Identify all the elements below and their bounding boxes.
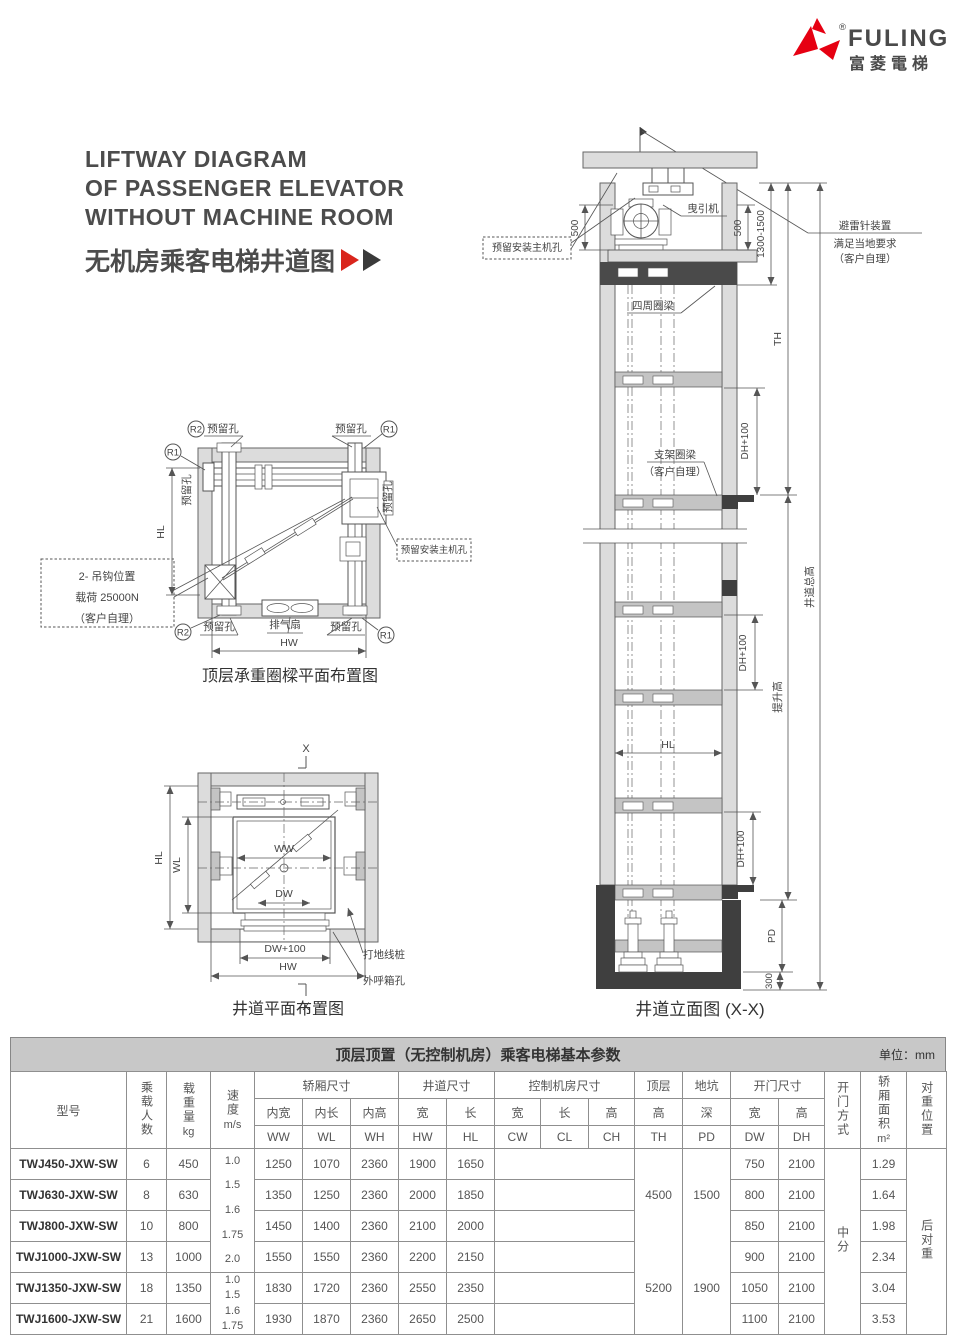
page-title: LIFTWAY DIAGRAM OF PASSENGER ELEVATOR WI… bbox=[85, 145, 404, 278]
table-row: TWJ1350-JXW-SW 18 1350 1.01.51.61.75 183… bbox=[11, 1273, 947, 1304]
col-dw: DW bbox=[731, 1126, 779, 1149]
machine-platform bbox=[608, 250, 757, 262]
cell-cwp: 后对重 bbox=[907, 1149, 947, 1335]
label-callbox: 外呼箱孔 bbox=[363, 974, 405, 987]
label-fan: 排气扇 bbox=[269, 618, 301, 631]
cell-ctrl-empty bbox=[495, 1149, 635, 1180]
diagonal-rope bbox=[232, 810, 338, 900]
cell-door-mode: 中分 bbox=[825, 1149, 861, 1335]
note-lightning-3: （客户自理） bbox=[834, 252, 897, 265]
group-ctrl-dims: 控制机房尺寸 bbox=[495, 1072, 635, 1099]
col-th-cn: 高 bbox=[635, 1099, 683, 1126]
dim-500-right: 500 bbox=[733, 219, 744, 236]
hook-note-1: 2- 吊钩位置 bbox=[79, 569, 136, 583]
table-row: TWJ630-JXW-SW 8 630 1350 1250 2360 2000 … bbox=[11, 1180, 947, 1211]
note-lightning-1: 避雷针装置 bbox=[839, 219, 892, 232]
col-hl: HL bbox=[447, 1126, 495, 1149]
col-dw-cn: 宽 bbox=[731, 1099, 779, 1126]
group-pit: 地坑 bbox=[683, 1072, 731, 1099]
title-line3: WITHOUT MACHINE ROOM bbox=[85, 203, 404, 232]
dim-dw: DW bbox=[275, 888, 293, 900]
col-iw: 内宽 bbox=[255, 1099, 303, 1126]
dim-lift-height: 提升高 bbox=[771, 681, 784, 713]
dim-label-hl: HL bbox=[155, 525, 167, 539]
shaft-plan: X W bbox=[110, 740, 470, 1025]
col-ch-cn: 高 bbox=[589, 1099, 635, 1126]
dim-1300-1500: 1300-1500 bbox=[756, 210, 767, 258]
dim-th: TH bbox=[772, 332, 784, 346]
subtitle-cn: 无机房乘客电梯井道图 bbox=[85, 242, 335, 278]
dim-hl: HL bbox=[661, 739, 675, 751]
col-hw: HW bbox=[399, 1126, 447, 1149]
label-r1-tr: R1 bbox=[383, 425, 395, 436]
label-support-beam: 支架圈梁 bbox=[654, 448, 696, 461]
machine-hole-note: 预留安装主机孔 bbox=[401, 544, 468, 556]
hook-box bbox=[205, 565, 235, 599]
label-ring-beam: 四周圈梁 bbox=[632, 299, 674, 312]
break-symbol bbox=[583, 529, 747, 543]
col-wh: WH bbox=[351, 1126, 399, 1149]
notes: 预留安装主机孔 曳引机 避雷针装置 满足当地要求 （客户自理） 四周圈梁 支架圈… bbox=[483, 173, 922, 496]
cell-speed-group2: 1.01.51.61.75 bbox=[211, 1273, 255, 1335]
note-lightning-2: 满足当地要求 bbox=[834, 237, 897, 250]
door-sill bbox=[241, 913, 329, 931]
col-model: 型号 bbox=[11, 1072, 127, 1149]
cell-model: TWJ450-JXW-SW bbox=[11, 1149, 127, 1180]
group-top-floor: 顶层 bbox=[635, 1072, 683, 1099]
label-hole-right: 预留孔 bbox=[381, 481, 394, 513]
label-hole-bl: 预留孔 bbox=[203, 620, 235, 633]
exhaust-fan bbox=[262, 600, 318, 616]
label-r2: R2 bbox=[190, 425, 202, 436]
table-row: TWJ1000-JXW-SW 13 1000 1550 1550 2360 22… bbox=[11, 1242, 947, 1273]
label-r2-bottom: R2 bbox=[177, 628, 189, 639]
col-ch: CH bbox=[589, 1126, 635, 1149]
cell-pd-merged: 15001900 bbox=[683, 1149, 731, 1335]
dim-pd: PD bbox=[767, 929, 778, 943]
dim-300: 300 bbox=[764, 973, 775, 989]
registered-mark: ® bbox=[839, 22, 846, 33]
ring-beam-band bbox=[600, 262, 737, 285]
col-pd: PD bbox=[683, 1126, 731, 1149]
table-title-bar: 顶层顶置（无控制机房）乘客电梯基本参数 单位：mm bbox=[10, 1037, 946, 1071]
dim-hw: HW bbox=[279, 961, 297, 973]
elevation-caption: 井道立面图 (X-X) bbox=[635, 1000, 764, 1019]
col-il: 内长 bbox=[303, 1099, 351, 1126]
col-cl: CL bbox=[541, 1126, 589, 1149]
shaft-plan-caption: 井道平面布置图 bbox=[232, 1000, 344, 1018]
group-car-dims: 轿厢尺寸 bbox=[255, 1072, 399, 1099]
dim-dh100-2: DH+100 bbox=[738, 634, 749, 671]
col-hw-cn: 宽 bbox=[399, 1099, 447, 1126]
dim-ww: WW bbox=[274, 843, 294, 855]
table-row: TWJ1600-JXW-SW 21 1600 1930 1870 2360 26… bbox=[11, 1304, 947, 1335]
cell-speed-group1: 1.01.51.61.752.0 bbox=[211, 1149, 255, 1273]
label-hole-tr: 预留孔 bbox=[335, 422, 367, 435]
dim-hl: HL bbox=[155, 468, 200, 595]
table-row: TWJ800-JXW-SW 10 800 1450 1400 2360 2100… bbox=[11, 1211, 947, 1242]
dim-dw100: DW+100 bbox=[264, 943, 305, 955]
hook-note-2: 载荷 25000N bbox=[75, 591, 139, 604]
title-line1: LIFTWAY DIAGRAM bbox=[85, 145, 404, 174]
group-door-dims: 开门尺寸 bbox=[731, 1072, 825, 1099]
arrow-icon-dark bbox=[363, 249, 381, 271]
col-wl: WL bbox=[303, 1126, 351, 1149]
col-dh: DH bbox=[779, 1126, 825, 1149]
table-unit: 单位：mm bbox=[879, 1046, 935, 1063]
table-title: 顶层顶置（无控制机房）乘客电梯基本参数 bbox=[11, 1044, 945, 1065]
dim-dh100-1: DH+100 bbox=[740, 422, 751, 459]
brand-name-cn: 富菱電梯 bbox=[849, 54, 933, 73]
col-hl-cn: 长 bbox=[447, 1099, 495, 1126]
label-hole-left: 预留孔 bbox=[180, 474, 193, 506]
top-ring-beam-plan: HL HW R2 预留孔 预留孔 R1 R1 预留孔 预留孔 R2 预留孔 排气… bbox=[40, 415, 470, 700]
section-x-top: X bbox=[302, 743, 310, 755]
spec-table: 型号 乘载人数 载重量kg 速度m/s 轿厢尺寸 井道尺寸 控制机房尺寸 顶层 … bbox=[10, 1071, 947, 1335]
label-traction: 曳引机 bbox=[687, 202, 719, 215]
brand-logo: ® FULING 富菱電梯 bbox=[792, 16, 942, 83]
dim-hl: HL bbox=[153, 851, 165, 865]
col-speed: 速度m/s bbox=[211, 1072, 255, 1149]
label-hole-tl: 预留孔 bbox=[207, 422, 239, 435]
col-area: 轿厢面积m² bbox=[861, 1072, 907, 1149]
label-stake: 打地线桩 bbox=[363, 948, 405, 961]
label-r1-left: R1 bbox=[167, 448, 179, 459]
fuling-logo: ® FULING 富菱電梯 bbox=[792, 16, 942, 78]
col-ww: WW bbox=[255, 1126, 303, 1149]
col-pd-cn: 深 bbox=[683, 1099, 731, 1126]
pit bbox=[596, 885, 754, 989]
arrow-icon-red bbox=[341, 249, 359, 271]
brand-name: FULING bbox=[848, 25, 949, 52]
diagonal-rope bbox=[222, 497, 353, 580]
traction-machine bbox=[611, 199, 671, 250]
spec-table-section: 顶层顶置（无控制机房）乘客电梯基本参数 单位：mm 型号 乘载人数 载重量kg … bbox=[10, 1037, 946, 1335]
note-machine-hole: 预留安装主机孔 bbox=[492, 241, 562, 254]
top-plan-caption: 顶层承重圈樑平面布置图 bbox=[202, 667, 378, 685]
group-shaft-dims: 井道尺寸 bbox=[399, 1072, 495, 1099]
cell-th-merged: 45005200 bbox=[635, 1149, 683, 1335]
col-th: TH bbox=[635, 1126, 683, 1149]
col-load: 载重量kg bbox=[167, 1072, 211, 1149]
col-persons: 乘载人数 bbox=[127, 1072, 167, 1149]
section-mark-top: X bbox=[298, 743, 310, 768]
label-support-beam-2: （客户自理） bbox=[644, 465, 707, 478]
dim-wl: WL bbox=[171, 857, 183, 873]
dim-total-height: 井道总高 bbox=[803, 566, 816, 608]
elevation-diagram: 500 500 1300-1500 TH 提升高 井道总高 DH+100 DH+… bbox=[475, 125, 956, 1030]
col-cw-cn: 宽 bbox=[495, 1099, 541, 1126]
hook-note-3: （客户自理） bbox=[74, 611, 140, 625]
title-line2: OF PASSENGER ELEVATOR bbox=[85, 174, 404, 203]
col-cw: CW bbox=[495, 1126, 541, 1149]
col-cl-cn: 长 bbox=[541, 1099, 589, 1126]
label-r1-br: R1 bbox=[380, 631, 392, 642]
col-dh-cn: 高 bbox=[779, 1099, 825, 1126]
dim-500-left: 500 bbox=[570, 219, 581, 236]
fuling-logo-mark-icon bbox=[793, 18, 840, 60]
dim-label-hw: HW bbox=[280, 637, 298, 649]
col-ih: 内高 bbox=[351, 1099, 399, 1126]
dim-dh100-3: DH+100 bbox=[736, 830, 747, 867]
col-cwp: 对重位置 bbox=[907, 1072, 947, 1149]
col-door-mode: 开门方式 bbox=[825, 1072, 861, 1149]
table-row: TWJ450-JXW-SW 6 450 1.01.51.61.752.0 125… bbox=[11, 1149, 947, 1180]
